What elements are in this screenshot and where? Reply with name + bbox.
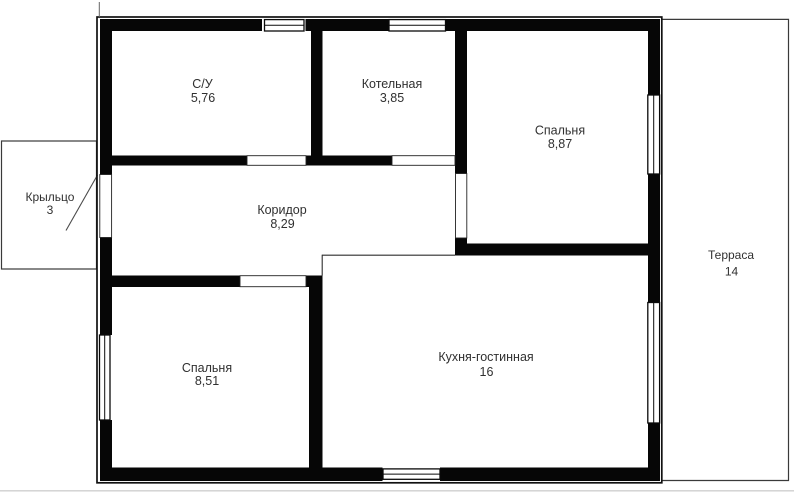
svg-text:8,51: 8,51: [195, 374, 219, 388]
svg-text:Терраса: Терраса: [708, 248, 754, 262]
svg-text:Крыльцо: Крыльцо: [26, 190, 75, 204]
svg-text:8,87: 8,87: [548, 137, 572, 151]
svg-text:Спальня: Спальня: [535, 124, 585, 138]
svg-text:С/У: С/У: [192, 77, 213, 91]
svg-text:3: 3: [47, 203, 54, 217]
svg-text:5,76: 5,76: [191, 91, 215, 105]
svg-text:8,29: 8,29: [270, 217, 294, 231]
svg-text:3,85: 3,85: [380, 91, 404, 105]
svg-text:Коридор: Коридор: [257, 203, 306, 217]
svg-text:16: 16: [480, 365, 494, 379]
svg-text:Котельная: Котельная: [362, 77, 423, 91]
svg-text:Кухня-гостинная: Кухня-гостинная: [438, 350, 533, 364]
svg-text:14: 14: [725, 265, 739, 279]
svg-text:Спальня: Спальня: [182, 361, 232, 375]
